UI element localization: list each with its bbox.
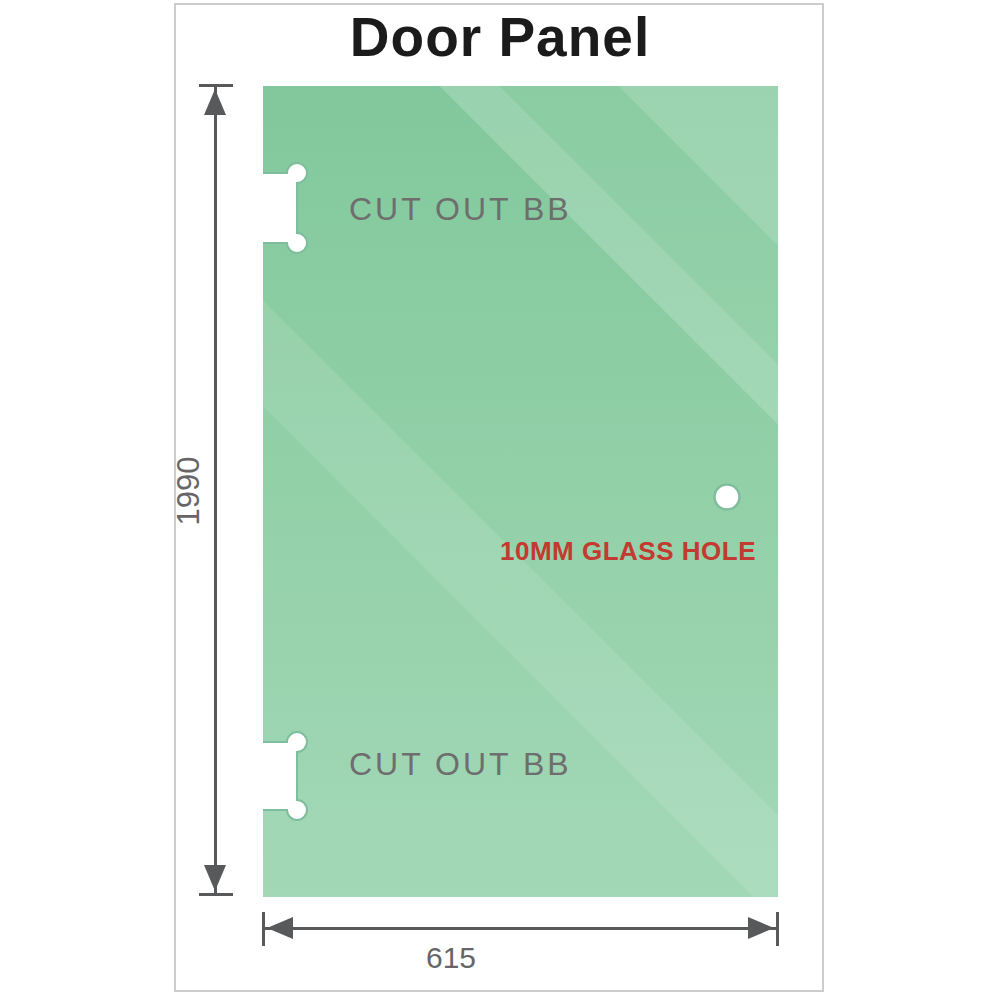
diagram-canvas: Door Panel CUT OUT BB CUT OUT BB 10MM GL… xyxy=(0,0,1000,1000)
height-dimension-value: 1990 xyxy=(171,421,207,561)
hinge-cutout-top-icon xyxy=(263,163,307,253)
width-dimension-line xyxy=(264,927,777,930)
glass-hole-icon xyxy=(715,485,740,510)
height-dimension-line xyxy=(214,87,217,893)
arrow-left-icon xyxy=(267,917,293,939)
cutout-label-bottom: CUT OUT BB xyxy=(349,746,572,782)
cutout-label-top: CUT OUT BB xyxy=(349,191,572,227)
arrow-up-icon xyxy=(204,89,226,115)
page-title: Door Panel xyxy=(174,8,826,66)
height-dimension-cap-bottom xyxy=(199,893,233,896)
arrow-down-icon xyxy=(204,865,226,891)
hinge-cutout-bottom-icon xyxy=(263,732,307,820)
arrow-right-icon xyxy=(748,917,774,939)
width-dimension-value: 615 xyxy=(391,941,511,975)
glass-hole-label: 10MM GLASS HOLE xyxy=(500,537,720,565)
door-panel-glass: CUT OUT BB CUT OUT BB 10MM GLASS HOLE xyxy=(263,86,778,897)
